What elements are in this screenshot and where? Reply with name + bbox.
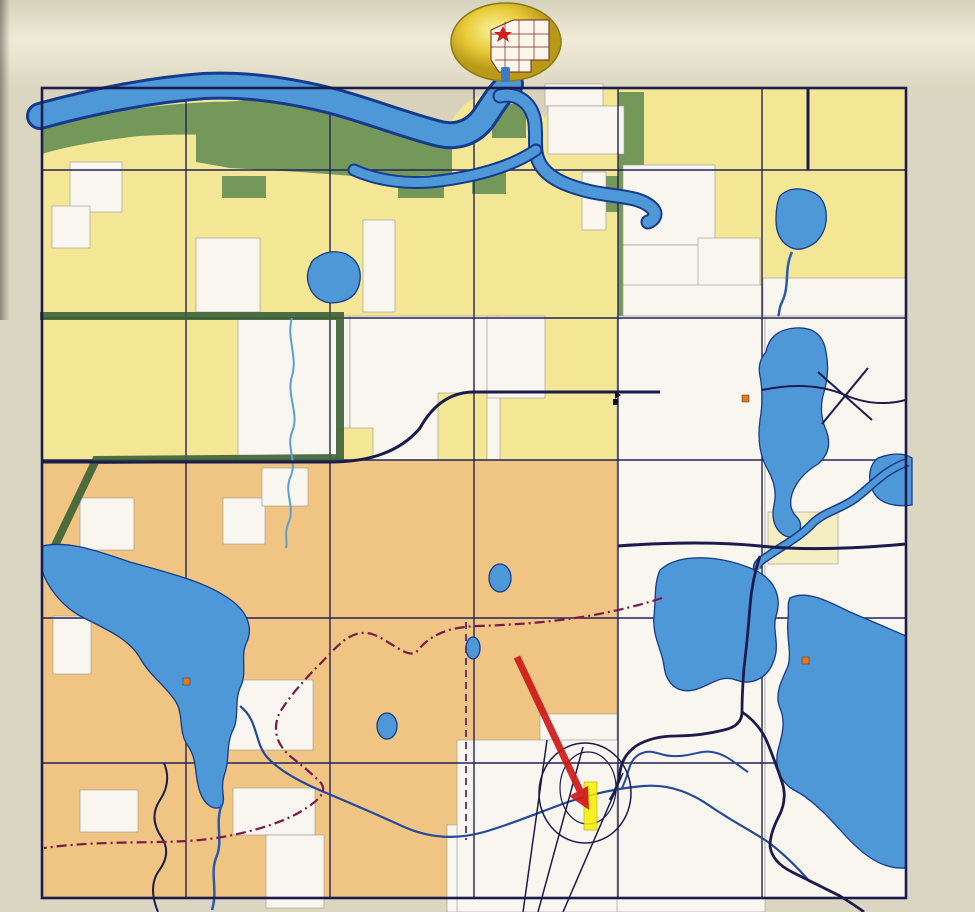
map-label-layer (0, 0, 975, 912)
county-logo (449, 0, 563, 84)
scan-edge-shadow (0, 0, 10, 320)
plat-map-page: { "header": { "township_name": "Union (E… (0, 0, 975, 912)
